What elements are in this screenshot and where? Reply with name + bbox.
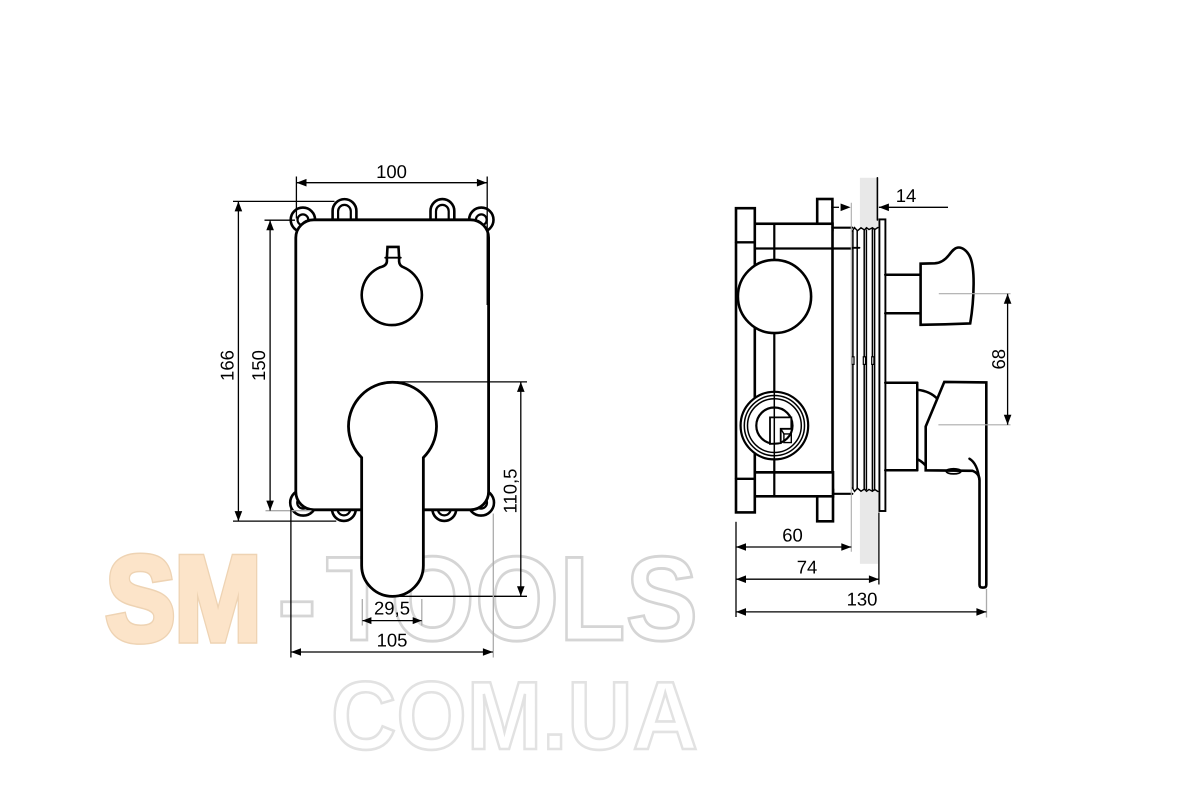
svg-text:74: 74 <box>797 556 818 577</box>
svg-text:60: 60 <box>782 524 803 545</box>
svg-text:130: 130 <box>847 588 878 609</box>
svg-text:105: 105 <box>377 629 408 650</box>
svg-text:-: - <box>277 532 317 666</box>
svg-text:150: 150 <box>248 350 269 381</box>
svg-text:166: 166 <box>216 350 237 381</box>
svg-text:110,5: 110,5 <box>500 469 521 514</box>
svg-text:SM: SM <box>106 532 261 666</box>
svg-text:29,5: 29,5 <box>374 597 410 618</box>
svg-text:100: 100 <box>376 161 407 182</box>
svg-text:COM.UA: COM.UA <box>331 661 698 770</box>
svg-text:14: 14 <box>896 185 917 206</box>
svg-text:68: 68 <box>988 349 1009 370</box>
